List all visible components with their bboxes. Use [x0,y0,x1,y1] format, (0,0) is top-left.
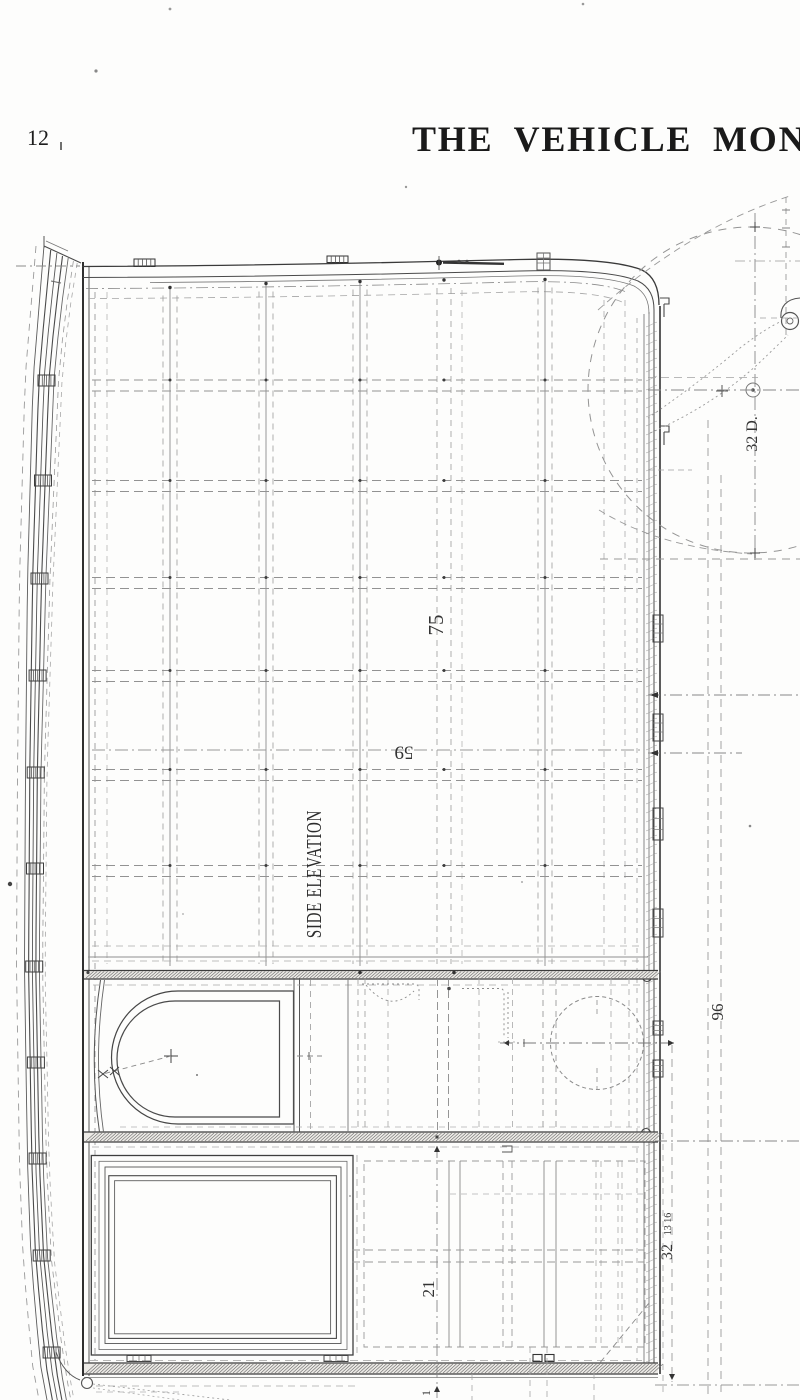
svg-text:21: 21 [419,1281,438,1298]
svg-text:75: 75 [424,615,448,636]
svg-text:59: 59 [395,742,414,763]
svg-text:12: 12 [27,125,49,150]
svg-text:1: 1 [419,1390,433,1396]
svg-text:32: 32 [659,1244,676,1260]
svg-text:32 D.: 32 D. [744,416,761,452]
svg-text:96: 96 [708,1004,727,1021]
svg-text:13 16: 13 16 [663,1213,674,1236]
svg-text:THE VEHICLE MONT: THE VEHICLE MONT [412,119,800,159]
svg-text:SIDE ELEVATION: SIDE ELEVATION [303,810,326,938]
